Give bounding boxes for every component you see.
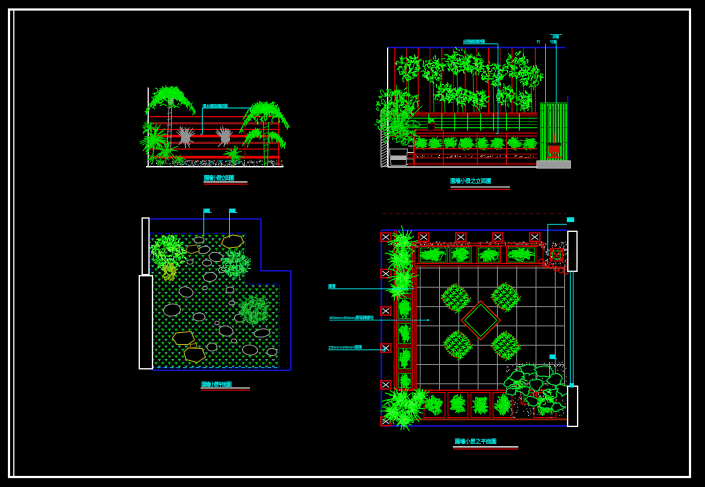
svg-text:灌木種植槽詳圖: 灌木種植槽詳圖 (202, 102, 228, 108)
svg-text:園墻小景之立面圖: 園墻小景之立面圖 (450, 177, 492, 185)
svg-text:150mm×200mm砌磚: 150mm×200mm砌磚 (328, 345, 362, 350)
svg-text:園墻小景之平面圖: 園墻小景之平面圖 (455, 438, 497, 446)
svg-text:竹: 竹 (536, 39, 541, 44)
svg-text:園墻小景平面圖: 園墻小景平面圖 (201, 380, 232, 388)
svg-text:300mm×300mm廣場磚鋪地: 300mm×300mm廣場磚鋪地 (329, 315, 374, 320)
svg-text:圍墻: 圍墻 (328, 284, 335, 289)
svg-text:園墻小景立面圖: 園墻小景立面圖 (204, 174, 235, 182)
svg-text:竹籬: 竹籬 (549, 39, 557, 44)
svg-text:台階種植槽詳圖: 台階種植槽詳圖 (463, 39, 486, 44)
